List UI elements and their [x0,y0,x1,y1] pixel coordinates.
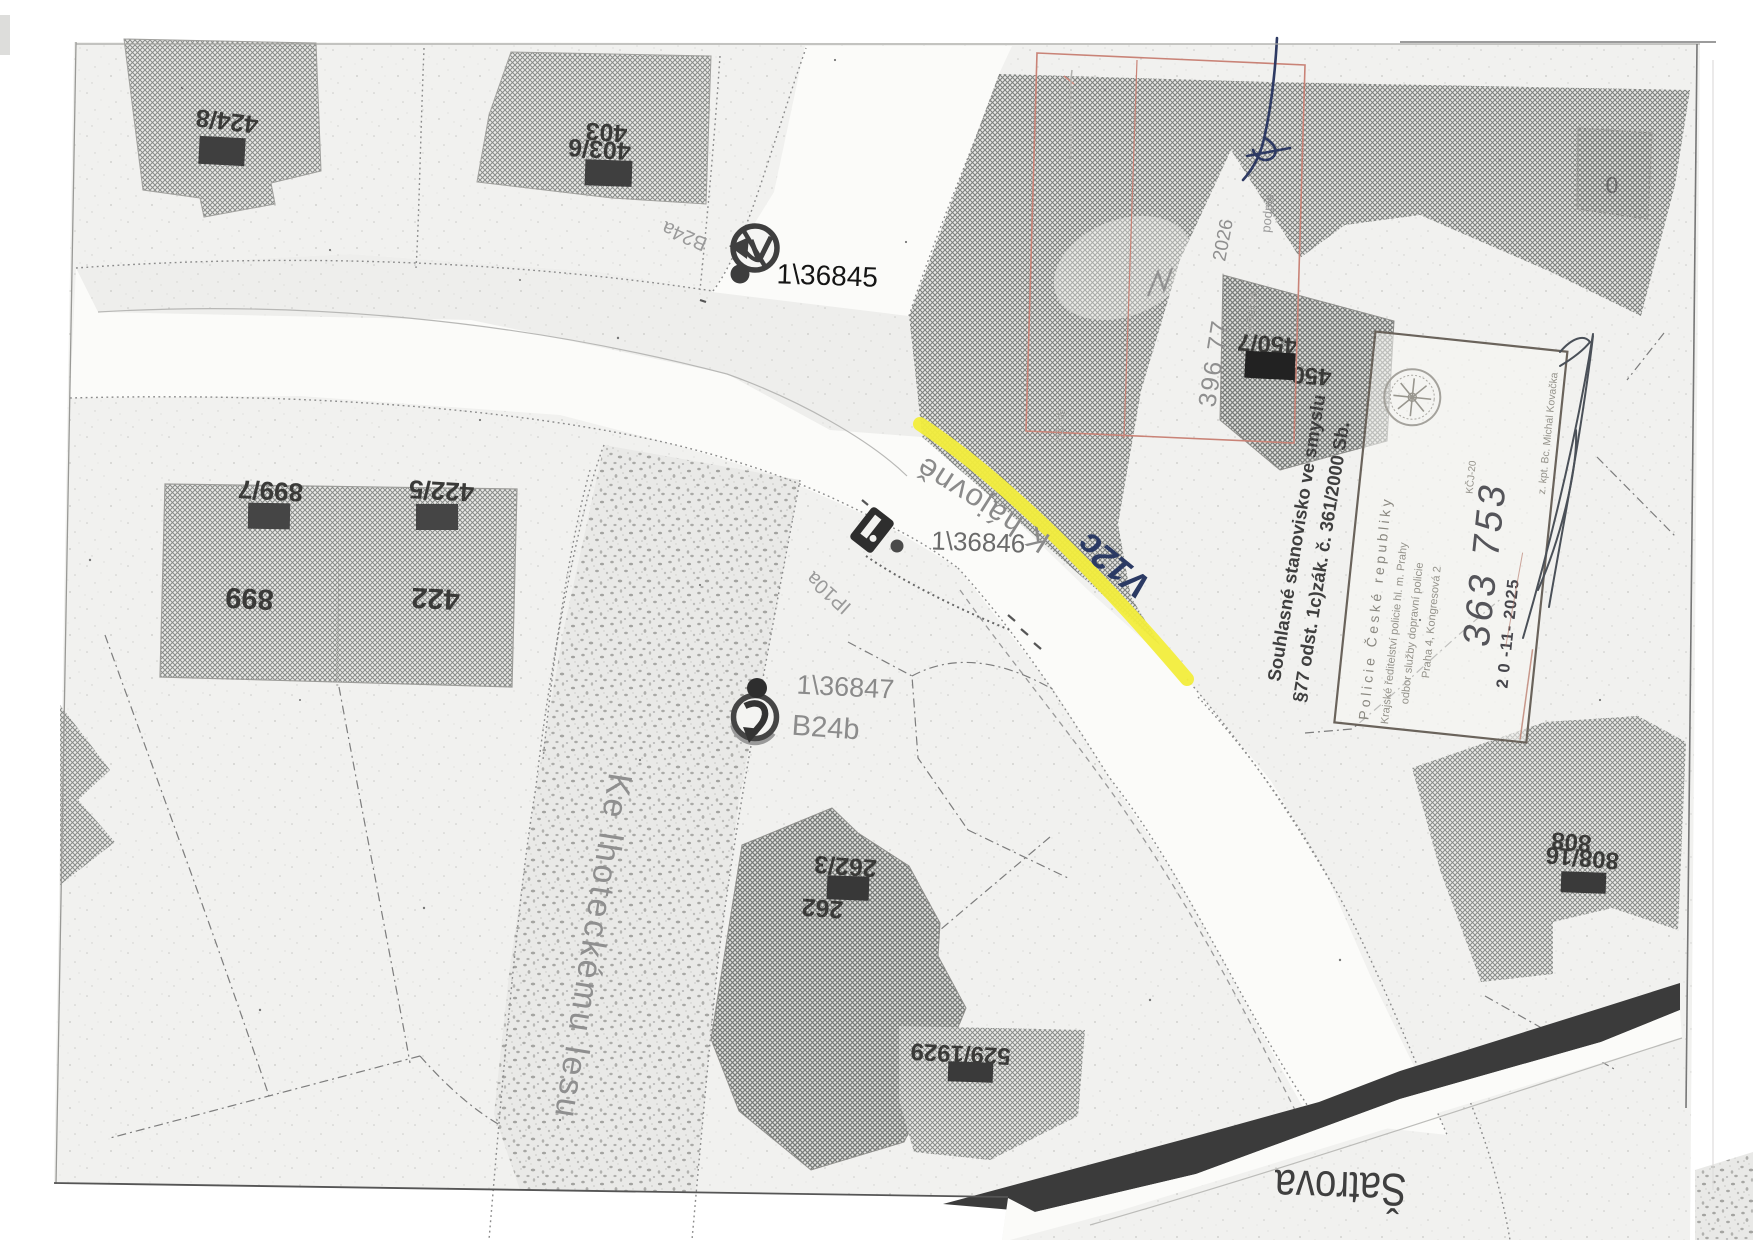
svg-text:422/5: 422/5 [408,474,475,507]
svg-text:1\36847: 1\36847 [796,669,895,704]
svg-text:899/7: 899/7 [237,474,304,507]
svg-text:422: 422 [411,581,461,615]
svg-text:B24b: B24b [791,710,861,747]
svg-text:0: 0 [1606,172,1619,198]
svg-text:899: 899 [225,581,275,615]
svg-text:1\36846: 1\36846 [931,525,1026,558]
svg-text:Šatrova: Šatrova [1273,1160,1407,1217]
svg-text:1\36845: 1\36845 [776,258,878,293]
